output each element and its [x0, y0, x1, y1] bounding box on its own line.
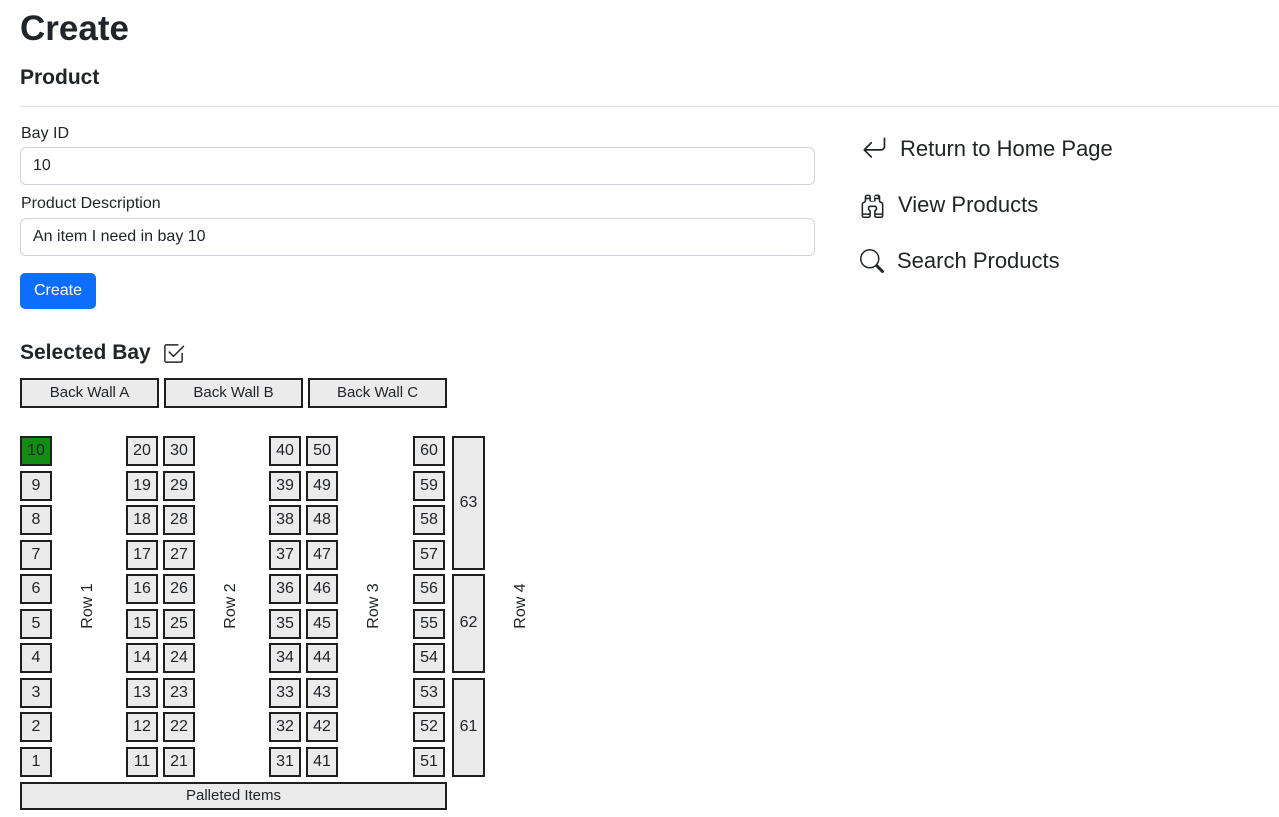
binoculars-icon — [860, 193, 885, 218]
nav-links-column: Return to Home Page View Products Search… — [860, 124, 1113, 809]
bay-cell[interactable]: 33 — [269, 678, 301, 708]
bay-cell[interactable]: 57 — [413, 540, 445, 570]
row-label: Row 3 — [364, 566, 384, 646]
bay-cell[interactable]: 8 — [20, 505, 52, 535]
bay-cell[interactable]: 5 — [20, 609, 52, 639]
bay-cell[interactable]: 63 — [452, 436, 485, 570]
bay-cell[interactable]: 58 — [413, 505, 445, 535]
bay-cell[interactable]: 51 — [413, 747, 445, 777]
bay-cell[interactable]: 35 — [269, 609, 301, 639]
bay-cell[interactable]: 41 — [306, 747, 338, 777]
bay-cell[interactable]: 39 — [269, 471, 301, 501]
bay-cell[interactable]: 46 — [306, 574, 338, 604]
bay-cell[interactable]: 52 — [413, 712, 445, 742]
bay-cell[interactable]: 29 — [163, 471, 195, 501]
selected-bay-heading-label: Selected Bay — [20, 340, 151, 365]
palleted-items-bar[interactable]: Palleted Items — [20, 782, 447, 810]
product-description-input[interactable] — [20, 218, 815, 256]
bay-cell[interactable]: 7 — [20, 540, 52, 570]
bay-cell[interactable]: 61 — [452, 678, 485, 777]
bay-cell[interactable]: 59 — [413, 471, 445, 501]
bay-cell[interactable]: 3 — [20, 678, 52, 708]
bay-id-label: Bay ID — [21, 124, 815, 143]
bay-cell[interactable]: 44 — [306, 643, 338, 673]
page-title: Create — [20, 8, 1279, 50]
form-column: Bay ID Product Description Create Select… — [20, 124, 815, 809]
bay-cell[interactable]: 20 — [126, 436, 158, 466]
bay-cell[interactable]: 38 — [269, 505, 301, 535]
bay-cell[interactable]: 15 — [126, 609, 158, 639]
bay-cell[interactable]: 53 — [413, 678, 445, 708]
bay-cell[interactable]: 11 — [126, 747, 158, 777]
bay-cell[interactable]: 28 — [163, 505, 195, 535]
bay-cell[interactable]: 49 — [306, 471, 338, 501]
bay-cell[interactable]: 19 — [126, 471, 158, 501]
create-button[interactable]: Create — [20, 273, 96, 310]
bay-cell[interactable]: 48 — [306, 505, 338, 535]
bay-cell[interactable]: 16 — [126, 574, 158, 604]
bay-cell[interactable]: 31 — [269, 747, 301, 777]
bay-cell[interactable]: 45 — [306, 609, 338, 639]
row-label: Row 1 — [78, 566, 98, 646]
bay-cell[interactable]: 12 — [126, 712, 158, 742]
bay-cell[interactable]: 27 — [163, 540, 195, 570]
arrow-return-left-icon — [860, 135, 887, 162]
bay-layout-grid: 1098765432120191817161514131211302928272… — [20, 436, 565, 777]
product-description-label: Product Description — [21, 194, 815, 213]
bay-cell[interactable]: 2 — [20, 712, 52, 742]
bay-cell[interactable]: 30 — [163, 436, 195, 466]
back-wall-b-button[interactable]: Back Wall B — [164, 378, 303, 408]
bay-cell[interactable]: 36 — [269, 574, 301, 604]
bay-cell[interactable]: 6 — [20, 574, 52, 604]
bay-cell[interactable]: 62 — [452, 574, 485, 673]
bay-cell[interactable]: 21 — [163, 747, 195, 777]
bay-cell[interactable]: 4 — [20, 643, 52, 673]
bay-cell[interactable]: 32 — [269, 712, 301, 742]
bay-cell[interactable]: 54 — [413, 643, 445, 673]
bay-cell[interactable]: 40 — [269, 436, 301, 466]
bay-cell[interactable]: 56 — [413, 574, 445, 604]
bay-cell[interactable]: 22 — [163, 712, 195, 742]
bay-cell[interactable]: 13 — [126, 678, 158, 708]
bay-cell[interactable]: 50 — [306, 436, 338, 466]
bay-cell[interactable]: 17 — [126, 540, 158, 570]
row-label: Row 4 — [511, 566, 531, 646]
back-wall-a-button[interactable]: Back Wall A — [20, 378, 159, 408]
bay-cell[interactable]: 25 — [163, 609, 195, 639]
search-products-link-label: Search Products — [897, 248, 1060, 274]
search-products-link[interactable]: Search Products — [860, 248, 1113, 274]
bay-cell[interactable]: 42 — [306, 712, 338, 742]
back-wall-buttons: Back Wall A Back Wall B Back Wall C — [20, 378, 447, 408]
view-products-link-label: View Products — [898, 192, 1038, 218]
bay-cell[interactable]: 1 — [20, 747, 52, 777]
bay-cell[interactable]: 47 — [306, 540, 338, 570]
bay-cell[interactable]: 26 — [163, 574, 195, 604]
return-home-link-label: Return to Home Page — [900, 136, 1113, 162]
bay-cell[interactable]: 23 — [163, 678, 195, 708]
selected-bay-heading: Selected Bay — [20, 340, 815, 365]
return-home-link[interactable]: Return to Home Page — [860, 135, 1113, 162]
bay-cell[interactable]: 37 — [269, 540, 301, 570]
bay-cell[interactable]: 34 — [269, 643, 301, 673]
product-description-field: Product Description — [20, 194, 815, 255]
bay-id-input[interactable] — [20, 147, 815, 185]
bay-cell[interactable]: 43 — [306, 678, 338, 708]
bay-cell[interactable]: 9 — [20, 471, 52, 501]
create-product-page: Create Product Bay ID Product Descriptio… — [0, 0, 1279, 810]
bay-id-field: Bay ID — [20, 124, 815, 185]
search-icon — [860, 249, 884, 273]
page-subtitle: Product — [20, 65, 1279, 90]
checkbox-checked-icon — [162, 342, 185, 365]
bay-cell[interactable]: 18 — [126, 505, 158, 535]
row-label: Row 2 — [221, 566, 241, 646]
bay-cell-selected[interactable]: 10 — [20, 436, 52, 466]
view-products-link[interactable]: View Products — [860, 192, 1113, 218]
bay-cell[interactable]: 14 — [126, 643, 158, 673]
bay-cell[interactable]: 55 — [413, 609, 445, 639]
bay-cell[interactable]: 60 — [413, 436, 445, 466]
divider — [20, 106, 1279, 107]
bay-cell[interactable]: 24 — [163, 643, 195, 673]
back-wall-c-button[interactable]: Back Wall C — [308, 378, 447, 408]
